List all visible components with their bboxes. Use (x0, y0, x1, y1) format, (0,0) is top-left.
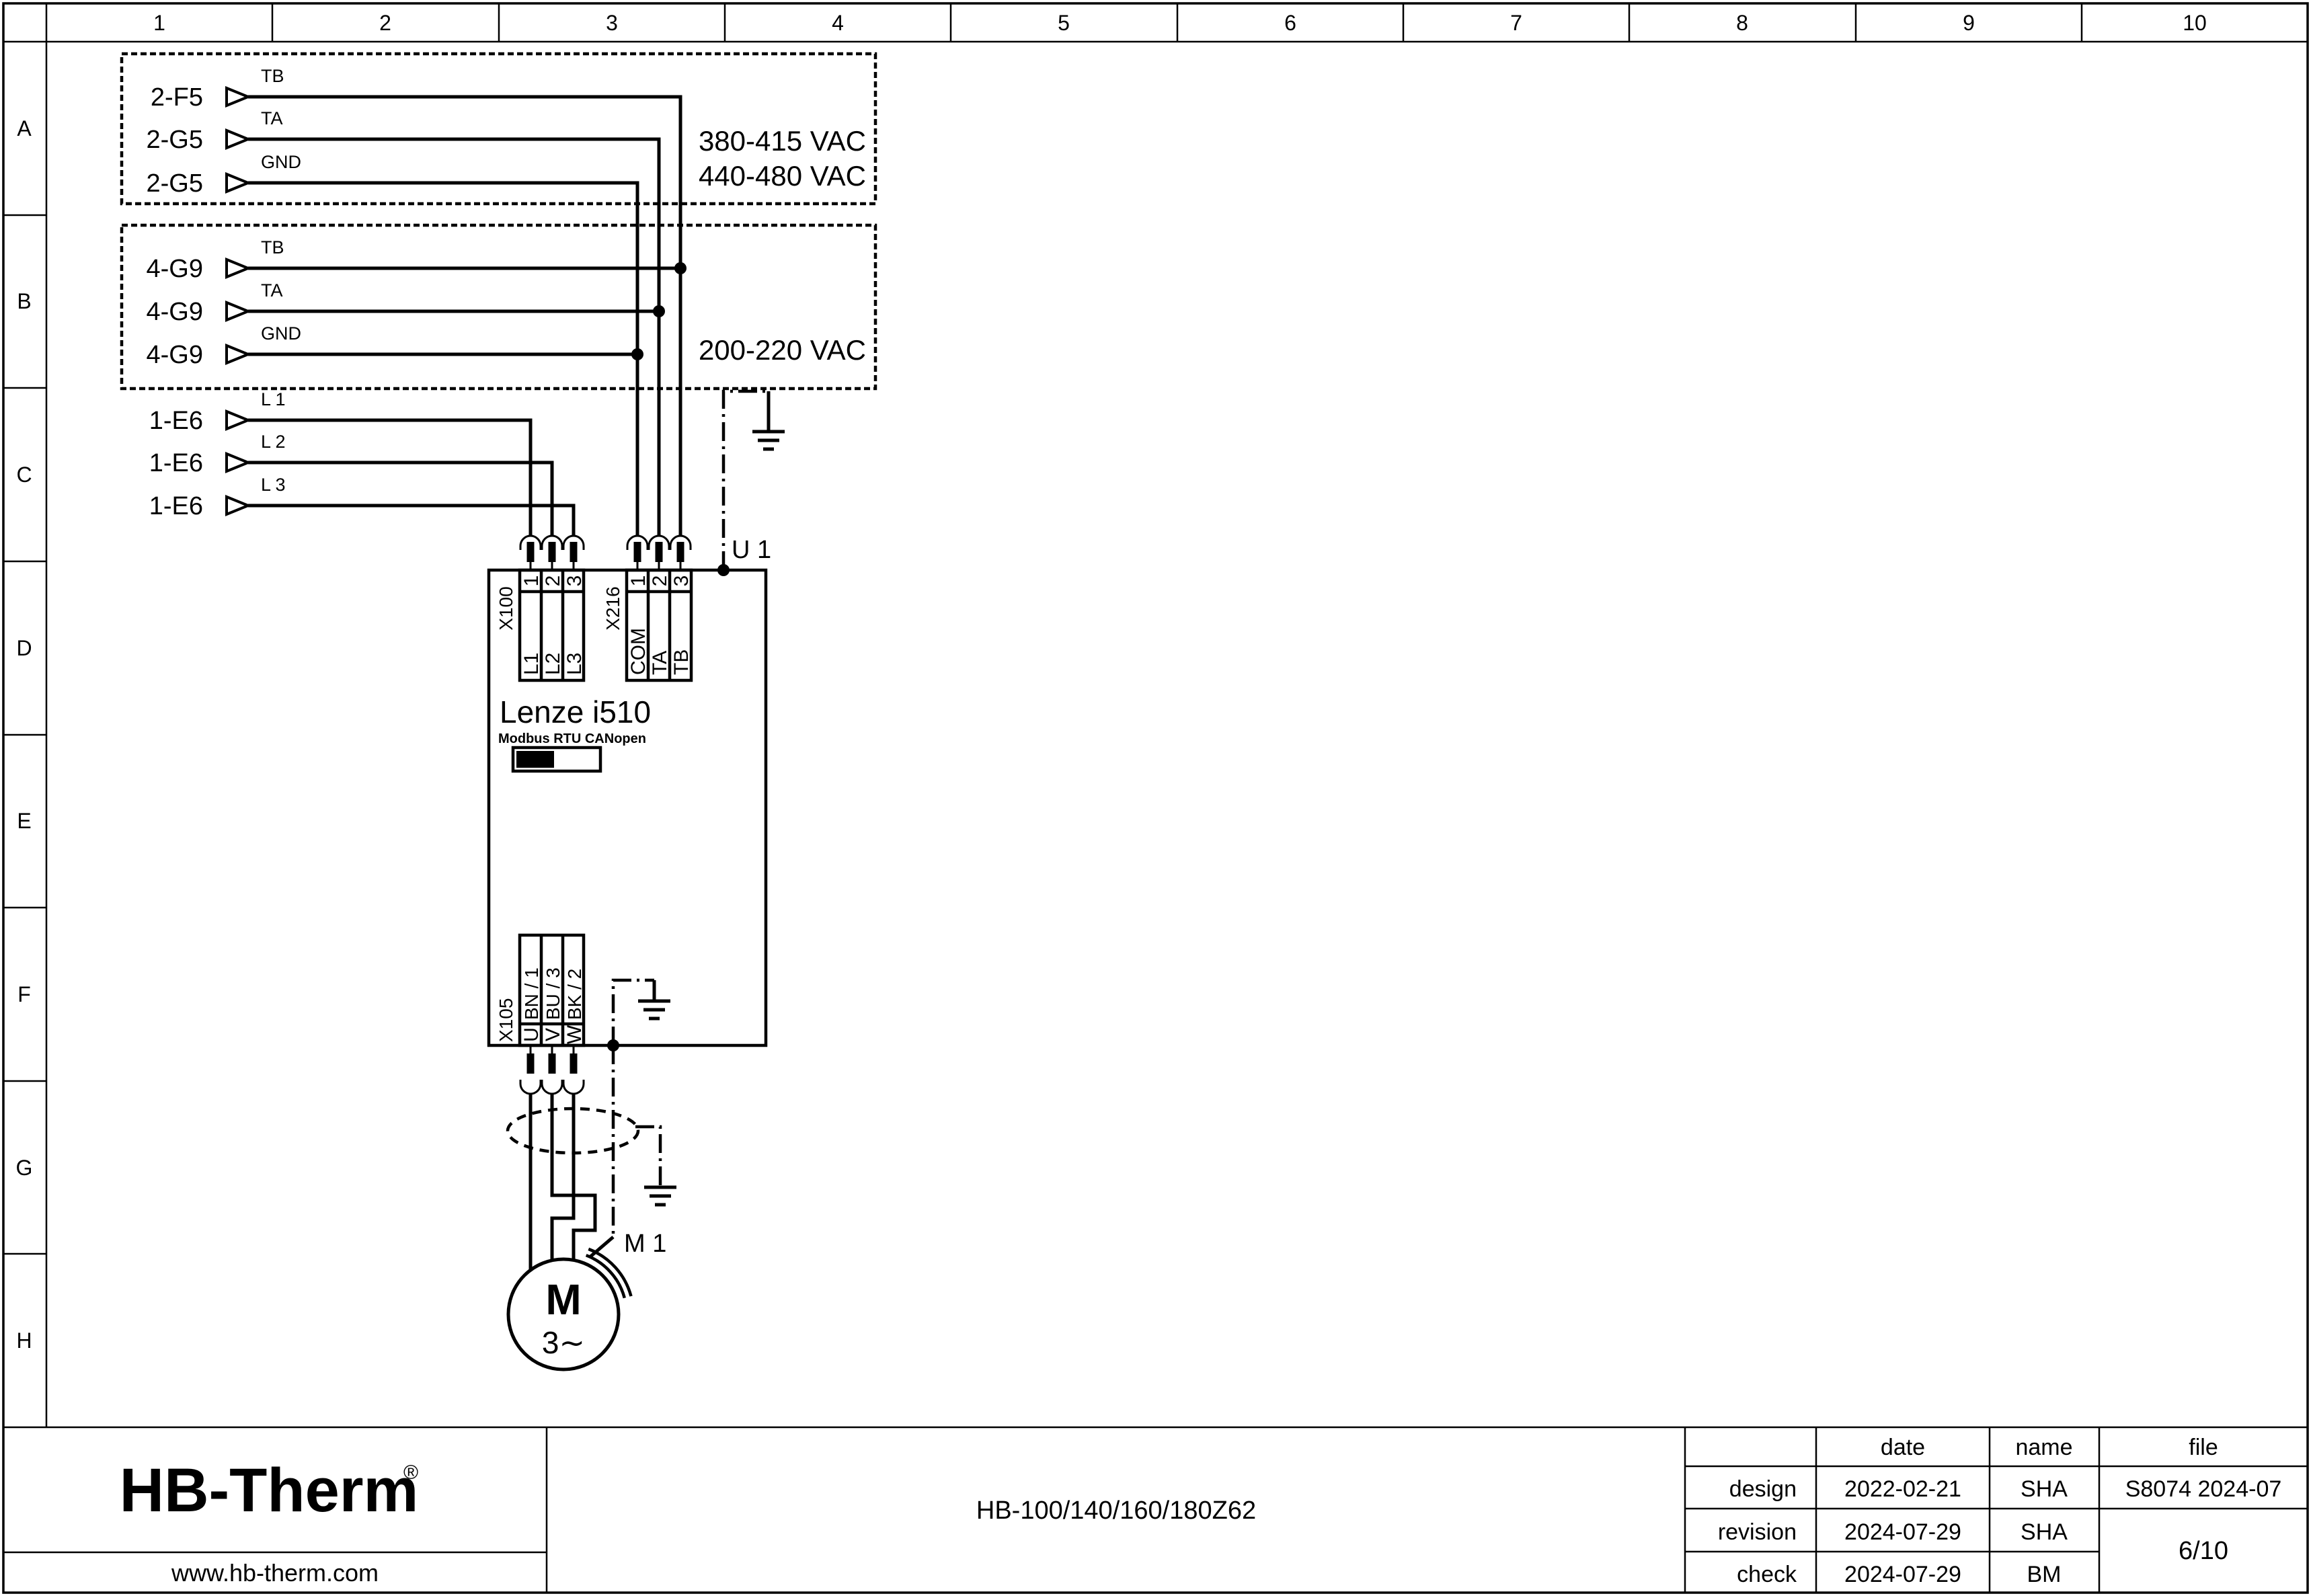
pin-number: 2 (649, 575, 671, 587)
col-label-10: 10 (2183, 11, 2207, 35)
wire-gnd (248, 183, 637, 536)
pin-icon (677, 542, 684, 562)
signal-label: TA (261, 108, 283, 128)
wire-l2 (248, 463, 552, 536)
ref-label: 2-G5 (147, 126, 203, 154)
schematic-page: 1 2 3 4 5 6 7 8 9 10 A B C D E F G H 2-F… (0, 0, 2311, 1596)
plug-connectors-bottom (520, 1045, 584, 1094)
col-label-4: 4 (832, 11, 844, 35)
table-cell-name: SHA (2021, 1476, 2068, 1502)
table-row-label: design (1729, 1476, 1797, 1502)
column-labels: 1 2 3 4 5 6 7 8 9 10 (153, 11, 2207, 35)
ref-label: 2-G5 (147, 169, 203, 198)
page-border (3, 3, 2308, 1593)
voltage-range-label: 440-480 VAC (699, 160, 866, 192)
table-cell-date: 2024-07-29 (1844, 1519, 1961, 1545)
signal-arrow (227, 130, 248, 148)
table-cell-name: SHA (2021, 1519, 2068, 1545)
registered-mark-icon: ® (403, 1462, 418, 1484)
socket-icon (563, 1080, 584, 1094)
col-label-3: 3 (606, 11, 618, 35)
signal-arrow (227, 346, 248, 363)
pin-number: 1 (520, 575, 543, 587)
col-label-2: 2 (379, 11, 391, 35)
ref-label: 1-E6 (149, 407, 203, 435)
brand-logo: HB-Therm ® (120, 1456, 419, 1525)
pin-icon (634, 542, 641, 562)
signal-label: L 3 (261, 475, 286, 495)
col-label-7: 7 (1510, 11, 1522, 35)
motor-phase: 3∼ (542, 1325, 585, 1360)
table-cell-date: 2022-02-21 (1844, 1476, 1961, 1502)
pin-number: 1 (627, 575, 650, 587)
screen-ground-line (635, 1127, 660, 1186)
signal-label: TB (261, 66, 284, 86)
terminal-block-label: X100 (496, 586, 516, 630)
ground-icon (752, 391, 785, 449)
signal-arrow (227, 174, 248, 192)
pin-number: 3 (670, 575, 693, 587)
col-label-5: 5 (1058, 11, 1070, 35)
table-cell-name: BM (2027, 1562, 2062, 1587)
row-label-d: D (16, 636, 32, 660)
signal-label: GND (261, 323, 301, 344)
page-number: 6/10 (2179, 1537, 2228, 1565)
drive-designation: U 1 (732, 536, 771, 564)
pin-letter: W (563, 1025, 586, 1044)
signal-label: TA (261, 280, 283, 301)
table-cell-date: 2024-07-29 (1844, 1562, 1961, 1587)
signal-label: L 2 (261, 432, 286, 452)
pin-icon (549, 542, 556, 562)
ref-label: 2-F5 (151, 83, 203, 112)
junction-dot (674, 262, 687, 274)
signal-arrow (227, 454, 248, 471)
terminal-block-label: X216 (602, 586, 623, 630)
file-number: S8074 2024-07 (2125, 1476, 2282, 1502)
voltage-range-label: 380-415 VAC (699, 125, 866, 157)
table-row-label: check (1737, 1562, 1797, 1587)
signal-arrow (227, 88, 248, 106)
page-frame: 1 2 3 4 5 6 7 8 9 10 A B C D E F G H (3, 3, 2308, 1593)
row-ticks (3, 215, 46, 1254)
ground-icon (644, 1187, 676, 1205)
row-label-f: F (17, 982, 31, 1006)
wire-color-label: BU / 3 (543, 967, 563, 1020)
ref-label: 4-G9 (147, 298, 203, 326)
voltage-range-label: 200-220 VAC (699, 334, 866, 366)
wire-tb (248, 97, 680, 536)
net-label: COM (627, 628, 650, 675)
net-label: L3 (563, 653, 586, 675)
wire-color-label: BN / 1 (521, 967, 542, 1020)
col-label-1: 1 (153, 11, 165, 35)
row-label-h: H (16, 1328, 32, 1353)
row-label-g: G (16, 1156, 33, 1180)
pin-icon (656, 542, 663, 562)
signal-arrow (227, 260, 248, 277)
source-box-b: 4-G9 TB 4-G9 TA 4-G9 GND 200-220 VAC (122, 225, 875, 389)
ground-icon (638, 980, 670, 1019)
pe-screen-line (613, 980, 654, 1045)
signal-label: L 1 (261, 389, 286, 409)
ref-label: 1-E6 (149, 449, 203, 477)
net-label: TA (649, 651, 671, 675)
net-label: L2 (542, 653, 564, 675)
ref-label: 4-G9 (147, 255, 203, 283)
wire-color-label: BK / 2 (564, 969, 585, 1020)
pin-icon (570, 1053, 578, 1074)
junction-dot (631, 348, 643, 360)
socket-icon (542, 1080, 562, 1094)
table-header-name: name (2015, 1435, 2072, 1460)
signal-arrow (227, 411, 248, 429)
col-label-8: 8 (1736, 11, 1748, 35)
pin-icon (549, 1053, 556, 1074)
plug-connectors-top (520, 536, 691, 570)
pin-icon (527, 542, 535, 562)
column-ticks (272, 3, 2082, 42)
website-link[interactable]: www.hb-therm.com (171, 1559, 379, 1587)
pin-number: 2 (542, 575, 564, 587)
wire-w (552, 1094, 574, 1265)
ref-label: 1-E6 (149, 492, 203, 520)
mains-feeds: 1-E6 L 1 1-E6 L 2 1-E6 L 3 (149, 389, 574, 536)
net-label: L1 (520, 653, 543, 675)
row-label-c: C (16, 463, 32, 487)
terminal-block-x216: X216 1 2 3 COM TA TB (602, 570, 693, 680)
title-block: HB-Therm ® www.hb-therm.com HB-100/140/1… (3, 1427, 2308, 1593)
pin-icon (527, 1053, 535, 1074)
table-header-file: file (2189, 1435, 2218, 1460)
dip-switch-knob (516, 751, 554, 768)
motor-symbol: M (545, 1275, 581, 1324)
table-row-label: revision (1718, 1519, 1797, 1545)
dip-switch (513, 748, 600, 771)
signal-arrow (227, 497, 248, 514)
table-header-date: date (1881, 1435, 1925, 1460)
row-label-b: B (17, 289, 31, 313)
terminal-block-x105: X105 BN / 1 BU / 3 BK / 2 U V W (496, 935, 586, 1045)
pin-letter: V (542, 1028, 564, 1041)
terminal-block-label: X105 (496, 998, 516, 1042)
signal-label: GND (261, 152, 301, 172)
comm-protocol-label: Modbus RTU CANopen (498, 731, 646, 746)
brand-logo-text: HB-Therm (120, 1456, 419, 1525)
motor-designation: M 1 (624, 1230, 666, 1258)
wire-ta (248, 139, 659, 536)
wire-l1 (248, 420, 531, 536)
col-label-9: 9 (1963, 11, 1975, 35)
ref-label: 4-G9 (147, 341, 203, 369)
pin-number: 3 (563, 575, 586, 587)
col-label-6: 6 (1284, 11, 1296, 35)
row-label-a: A (17, 116, 32, 141)
signal-arrow (227, 303, 248, 320)
drive-model: Lenze i510 (500, 694, 651, 729)
pin-icon (570, 542, 578, 562)
pin-letter: U (520, 1027, 543, 1042)
document-title: HB-100/140/160/180Z62 (976, 1497, 1256, 1525)
junction-dot (653, 305, 665, 317)
signal-label: TB (261, 237, 284, 257)
terminal-block-x100: X100 1 2 3 L1 L2 L3 (496, 570, 586, 680)
row-label-e: E (17, 809, 31, 833)
net-label: TB (670, 649, 693, 675)
wire-l3 (248, 506, 574, 536)
socket-icon (520, 1080, 541, 1094)
